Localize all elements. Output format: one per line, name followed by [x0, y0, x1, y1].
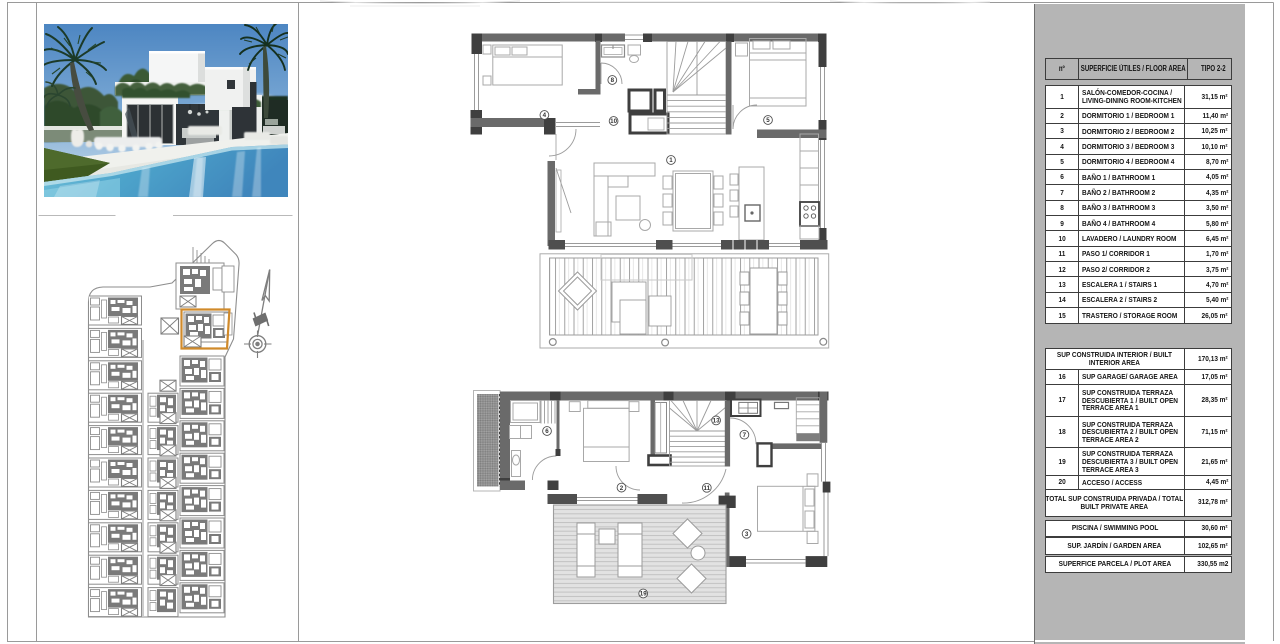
svg-text:19: 19 — [640, 591, 647, 598]
svg-text:10: 10 — [610, 118, 617, 125]
svg-text:11: 11 — [704, 485, 711, 492]
svg-text:4: 4 — [543, 112, 547, 119]
svg-text:6: 6 — [545, 428, 549, 435]
svg-text:8: 8 — [611, 77, 615, 84]
svg-text:7: 7 — [743, 432, 747, 439]
svg-text:1: 1 — [669, 157, 673, 164]
svg-text:2: 2 — [620, 485, 624, 492]
svg-text:3: 3 — [745, 531, 749, 538]
svg-text:13: 13 — [713, 418, 720, 425]
svg-text:5: 5 — [766, 117, 770, 124]
